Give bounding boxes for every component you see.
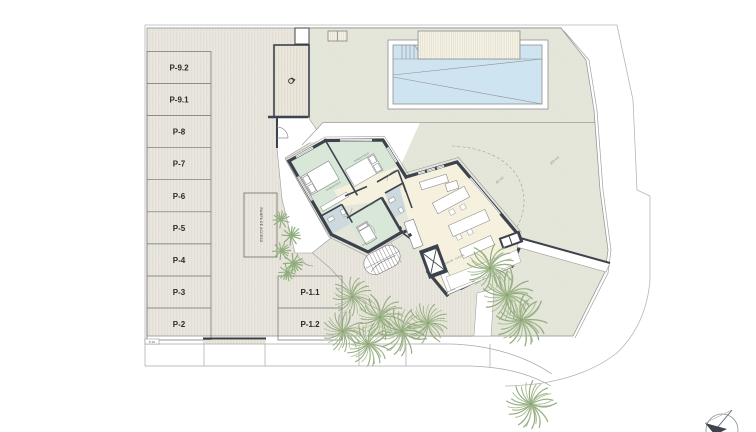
svg-text:P-10: P-10 xyxy=(149,340,156,344)
svg-text:P-6: P-6 xyxy=(173,192,186,201)
svg-text:P-9.2: P-9.2 xyxy=(169,64,189,73)
svg-text:P-1.1: P-1.1 xyxy=(300,288,320,297)
svg-text:P-9.1: P-9.1 xyxy=(169,96,189,105)
svg-text:P-4: P-4 xyxy=(173,256,186,265)
svg-text:P-2: P-2 xyxy=(173,320,186,329)
svg-text:P-8: P-8 xyxy=(173,128,186,137)
svg-text:RAMPA DE ACCESO: RAMPA DE ACCESO xyxy=(259,208,263,243)
svg-text:P-5: P-5 xyxy=(173,224,186,233)
svg-text:P-7: P-7 xyxy=(173,160,186,169)
svg-text:P-1.2: P-1.2 xyxy=(300,320,320,329)
svg-text:P-3: P-3 xyxy=(173,288,186,297)
